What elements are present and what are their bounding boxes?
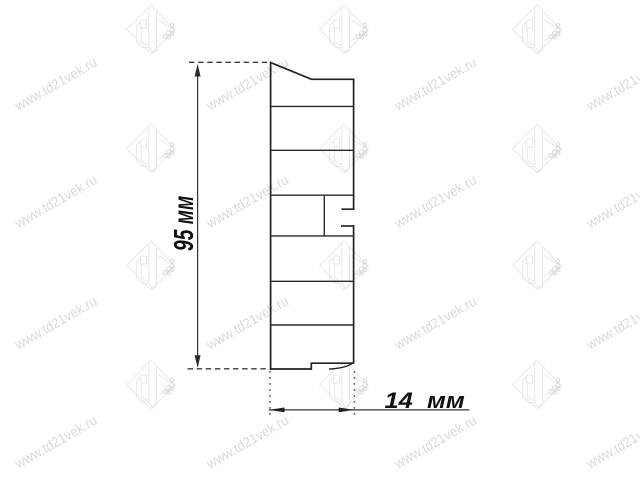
svg-text:95 мм: 95 мм <box>170 195 200 251</box>
svg-text:14 мм: 14 мм <box>385 390 466 414</box>
